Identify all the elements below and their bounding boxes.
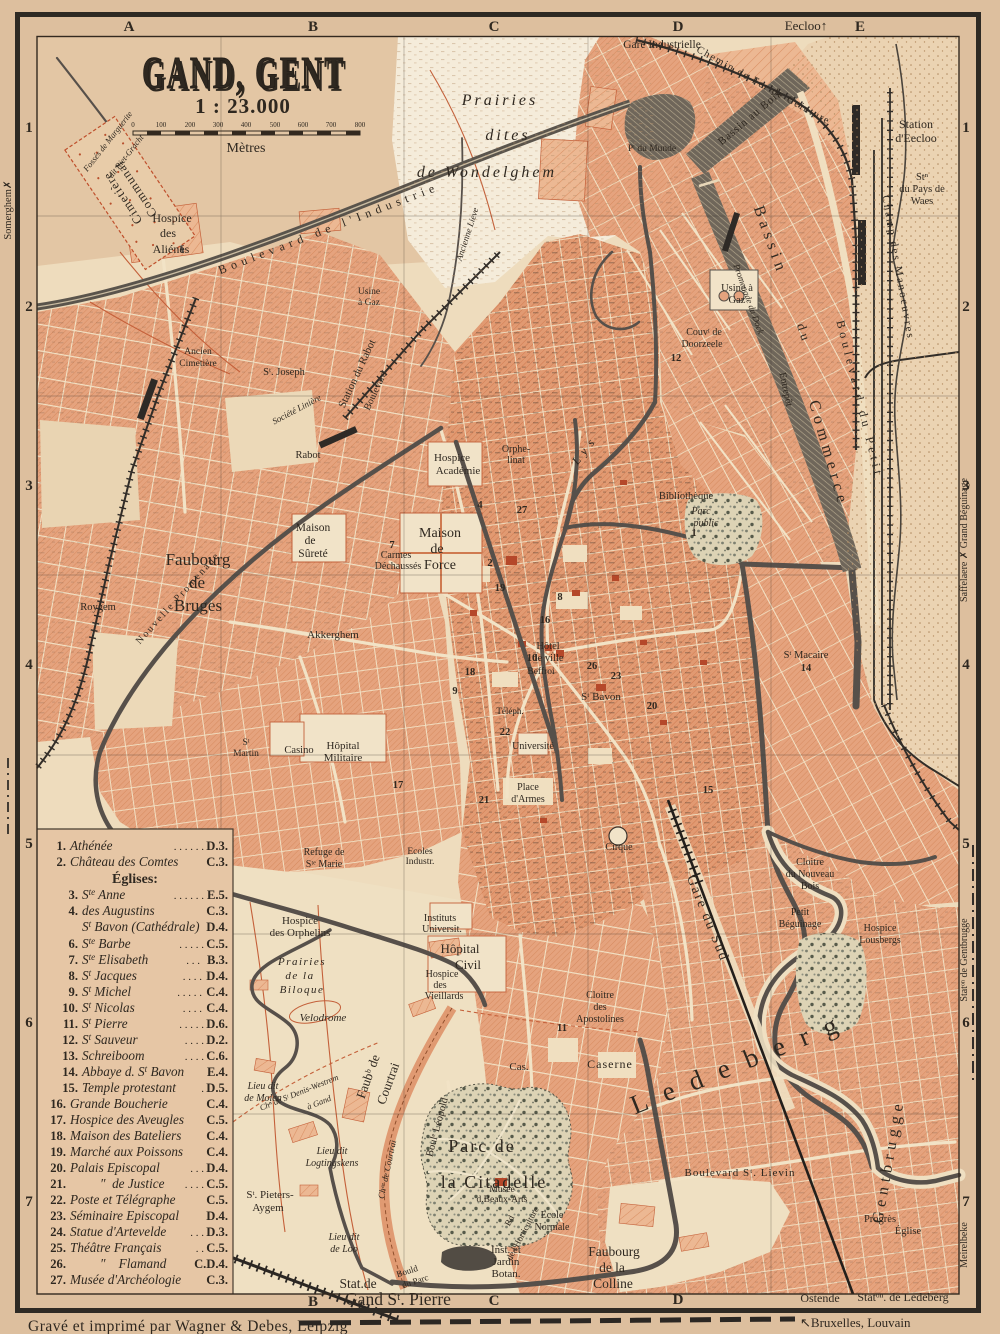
svg-text:Musée: Musée [489, 1185, 514, 1195]
svg-text:21.: 21. [50, 1177, 66, 1191]
svg-text:11: 11 [557, 1023, 567, 1034]
svg-text:Bibliothèque: Bibliothèque [659, 491, 714, 502]
svg-text:6: 6 [962, 1015, 970, 1031]
svg-text:C.5.: C.5. [206, 937, 228, 951]
svg-text:Colline: Colline [593, 1276, 633, 1291]
svg-text:d'Armes: d'Armes [511, 794, 545, 805]
svg-text:. . . . .: . . . . . [179, 1019, 204, 1031]
svg-text:Boulevard Sᵗ. Lievin: Boulevard Sᵗ. Lievin [684, 1167, 795, 1179]
svg-text:A: A [124, 19, 135, 35]
svg-text:à Gaz: à Gaz [358, 298, 380, 308]
svg-text:1.: 1. [57, 839, 66, 853]
svg-text:14.: 14. [62, 1065, 78, 1079]
svg-text:Maison des Bateliers: Maison des Bateliers [69, 1128, 181, 1143]
svg-text:de: de [305, 535, 316, 547]
svg-text:13.: 13. [62, 1049, 78, 1063]
svg-text:Biloque: Biloque [280, 984, 325, 996]
svg-text:16: 16 [540, 615, 551, 626]
svg-text:. . . .: . . . . [185, 1035, 205, 1047]
svg-text:22.: 22. [50, 1193, 66, 1207]
svg-text:D.3.: D.3. [206, 839, 228, 853]
svg-text:. . . .: . . . . [183, 971, 203, 983]
svg-text:27: 27 [517, 505, 528, 516]
svg-text:Saffelaere ✗ Grand Béguinage: Saffelaere ✗ Grand Béguinage [959, 477, 970, 602]
svg-text:. . . . . .: . . . . . . [174, 890, 205, 902]
svg-text:Beffroi: Beffroi [527, 666, 555, 677]
svg-text:17.: 17. [50, 1113, 66, 1127]
svg-text:St Sauveur: St Sauveur [82, 1032, 138, 1047]
svg-text:Lousbergs: Lousbergs [859, 935, 901, 946]
svg-text:Hospice: Hospice [282, 915, 318, 927]
svg-text:. . . .: . . . . [183, 1003, 203, 1015]
svg-text:Églises:: Églises: [112, 870, 158, 887]
svg-text:Parc de: Parc de [448, 1136, 515, 1156]
svg-text:Prairies: Prairies [277, 956, 326, 968]
svg-text:16.: 16. [50, 1097, 66, 1111]
svg-text:Station: Station [899, 117, 933, 131]
svg-text:. . . . .: . . . . . [179, 939, 204, 951]
svg-text:7: 7 [389, 540, 394, 551]
svg-text:4: 4 [962, 657, 970, 673]
svg-text:Hospice: Hospice [152, 211, 191, 225]
svg-text:Gare Industrielle: Gare Industrielle [623, 39, 701, 51]
svg-text:Place: Place [517, 782, 539, 793]
svg-text:Académie: Académie [436, 465, 481, 477]
svg-text:Carmes: Carmes [381, 550, 412, 561]
svg-text:C.4.: C.4. [206, 1001, 228, 1015]
svg-text:Sᵗᵉ Marie: Sᵗᵉ Marie [306, 859, 343, 870]
svg-text:Civil: Civil [455, 957, 481, 972]
svg-text:″ Flamand: ″ Flamand [100, 1256, 167, 1271]
svg-text:. . . .: . . . . [185, 1179, 205, 1191]
svg-text:Doorzeele: Doorzeele [681, 339, 723, 350]
svg-text:2: 2 [25, 299, 33, 315]
svg-text:2: 2 [487, 558, 492, 569]
svg-text:de: de [430, 542, 443, 557]
svg-text:E.5.: E.5. [207, 888, 228, 902]
svg-text:St Bavon (Cathédrale): St Bavon (Cathédrale) [82, 919, 200, 934]
svg-text:8: 8 [557, 592, 562, 603]
svg-text:Hospice: Hospice [864, 923, 897, 934]
svg-text:7: 7 [962, 1194, 970, 1210]
svg-text:Hospice: Hospice [426, 969, 459, 980]
svg-text:C.6.: C.6. [206, 1049, 228, 1063]
svg-text:2.: 2. [57, 855, 66, 869]
svg-text:. . . . .: . . . . . [177, 987, 202, 999]
svg-text:d'Eecloo: d'Eecloo [895, 131, 936, 145]
svg-text:Statᵒⁿ. de Ledeberg: Statᵒⁿ. de Ledeberg [857, 1290, 948, 1304]
svg-text:C.5.: C.5. [206, 1193, 228, 1207]
svg-text:5: 5 [25, 836, 33, 852]
svg-text:Sᵗ. Pieters-: Sᵗ. Pieters- [246, 1189, 294, 1201]
svg-text:Aygem: Aygem [252, 1202, 284, 1214]
svg-text:Maison: Maison [419, 526, 461, 541]
svg-text:6.: 6. [69, 937, 78, 951]
svg-text:C: C [489, 1293, 500, 1309]
svg-text:C.3.: C.3. [206, 1273, 228, 1287]
svg-text:E.4.: E.4. [207, 1065, 228, 1079]
svg-text:18: 18 [465, 667, 476, 678]
svg-text:Caserne: Caserne [587, 1057, 633, 1071]
svg-text:Sᵗ Macaire: Sᵗ Macaire [784, 650, 829, 661]
svg-text:Petit: Petit [791, 907, 810, 918]
svg-text:Prairies: Prairies [461, 92, 538, 109]
svg-text:C.4.: C.4. [206, 985, 228, 999]
svg-text:C.4.: C.4. [206, 1129, 228, 1143]
svg-text:des: des [160, 226, 176, 240]
svg-text:Ecoles: Ecoles [407, 847, 433, 857]
svg-text:C: C [489, 19, 500, 35]
svg-text:8.: 8. [69, 969, 78, 983]
svg-text:Hôtel: Hôtel [536, 641, 559, 652]
svg-text:26.: 26. [50, 1257, 66, 1271]
svg-text:800: 800 [355, 121, 366, 129]
svg-text:D.4.: D.4. [206, 1209, 228, 1223]
svg-text:Université: Université [512, 741, 554, 752]
svg-text:600: 600 [298, 121, 309, 129]
svg-text:. .: . . [196, 1243, 205, 1255]
svg-text:des: des [433, 980, 446, 991]
svg-text:3: 3 [25, 478, 33, 494]
svg-text:du Nouveau: du Nouveau [786, 869, 835, 880]
svg-text:Cas.: Cas. [509, 1061, 529, 1073]
svg-text:200: 200 [185, 121, 196, 129]
svg-text:C.5.: C.5. [206, 1113, 228, 1127]
svg-text:Cloitre: Cloitre [796, 857, 824, 868]
svg-text:2: 2 [962, 299, 970, 315]
svg-text:Abbaye d. St Bavon: Abbaye d. St Bavon [81, 1064, 185, 1079]
svg-text:Gaz: Gaz [729, 295, 746, 306]
svg-text:Ancien: Ancien [184, 347, 212, 357]
svg-text:12: 12 [671, 353, 682, 364]
svg-text:Poste et Télégraphe: Poste et Télégraphe [69, 1192, 176, 1207]
svg-text:Faubourg: Faubourg [166, 550, 231, 569]
svg-text:Statᵒⁿ de Gentbrugge: Statᵒⁿ de Gentbrugge [959, 918, 970, 1002]
svg-text:15: 15 [703, 785, 714, 796]
svg-text:de Loo: de Loo [330, 1244, 358, 1255]
svg-text:Cloitre: Cloitre [586, 990, 614, 1001]
svg-text:E: E [855, 19, 865, 35]
svg-text:B.3.: B.3. [207, 953, 228, 967]
svg-text:de la: de la [599, 1260, 625, 1275]
svg-text:D.5.: D.5. [206, 1081, 228, 1095]
svg-text:Militaire: Militaire [324, 752, 363, 764]
svg-text:0: 0 [131, 121, 135, 129]
svg-text:Athénée: Athénée [69, 838, 113, 853]
svg-text:Jardin: Jardin [493, 1256, 520, 1268]
svg-text:Sᵗ Bavon: Sᵗ Bavon [581, 691, 621, 703]
svg-text:27.: 27. [50, 1273, 66, 1287]
svg-text:Couvᵗ de: Couvᵗ de [686, 327, 722, 338]
svg-text:Aliénés: Aliénés [153, 242, 190, 256]
svg-text:Mètres: Mètres [227, 141, 266, 156]
svg-text:Inst. et: Inst. et [491, 1244, 521, 1256]
svg-text:C.D.4.: C.D.4. [194, 1257, 228, 1271]
svg-text:linat: linat [507, 455, 525, 466]
svg-text:500: 500 [270, 121, 281, 129]
svg-text:Roygem: Roygem [80, 602, 116, 613]
svg-text:Somerghem✗: Somerghem✗ [2, 180, 14, 239]
svg-text:B: B [308, 19, 318, 35]
svg-text:Téléph.: Téléph. [496, 706, 523, 716]
svg-text:22: 22 [500, 727, 511, 738]
svg-text:D.2.: D.2. [206, 1033, 228, 1047]
svg-text:Séminaire Episcopal: Séminaire Episcopal [70, 1208, 179, 1223]
svg-text:Gravé et imprimé par Wagner &: Gravé et imprimé par Wagner & Debes, Lei… [28, 1318, 348, 1334]
svg-text:Gand Sᵗ. Pierre: Gand Sᵗ. Pierre [345, 1289, 451, 1309]
svg-text:10.: 10. [62, 1001, 78, 1015]
svg-text:Ste Anne: Ste Anne [82, 887, 125, 902]
svg-text:18.: 18. [50, 1129, 66, 1143]
svg-text:de Wondelghem: de Wondelghem [417, 164, 557, 181]
svg-text:St Jacques: St Jacques [82, 968, 137, 983]
svg-text:D: D [673, 19, 684, 35]
svg-text:. . .: . . . [186, 955, 200, 967]
svg-text:Normale: Normale [535, 1222, 571, 1233]
svg-text:C.5.: C.5. [206, 1241, 228, 1255]
svg-text:Force: Force [424, 558, 456, 573]
svg-text:Statue d'Artevelde: Statue d'Artevelde [70, 1224, 166, 1239]
svg-text:25.: 25. [50, 1241, 66, 1255]
svg-text:Akkerghem: Akkerghem [307, 629, 359, 641]
svg-text:Ostende: Ostende [800, 1291, 839, 1305]
svg-text:3.: 3. [69, 888, 78, 902]
svg-text:Lieu dit: Lieu dit [316, 1146, 348, 1157]
svg-text:D.6.: D.6. [206, 1017, 228, 1031]
svg-text:1 : 23.000: 1 : 23.000 [195, 94, 291, 118]
svg-text:C.5.: C.5. [206, 1177, 228, 1191]
svg-text:Rabot: Rabot [295, 450, 320, 461]
svg-text:Progrès: Progrès [864, 1214, 896, 1225]
svg-text:. . . . . .: . . . . . . [174, 841, 205, 853]
svg-text:400: 400 [241, 121, 252, 129]
svg-text:10: 10 [527, 653, 538, 664]
svg-text:Temple protestant: Temple protestant [82, 1080, 176, 1095]
svg-text:Hôpital: Hôpital [327, 740, 360, 752]
svg-text:17: 17 [393, 780, 404, 791]
svg-text:.: . [201, 1083, 204, 1095]
svg-text:9.: 9. [69, 985, 78, 999]
svg-text:Sûreté: Sûreté [298, 548, 327, 560]
svg-text:Martin: Martin [233, 749, 259, 759]
svg-text:↖Bruxelles, Louvain: ↖Bruxelles, Louvain [800, 1315, 911, 1330]
svg-text:Hospice: Hospice [434, 452, 470, 464]
svg-text:5: 5 [962, 836, 970, 852]
svg-text:C.3.: C.3. [206, 904, 228, 918]
svg-text:. . .: . . . [190, 1227, 204, 1239]
svg-text:Maison: Maison [296, 522, 331, 534]
svg-text:Sᵗ: Sᵗ [242, 738, 249, 748]
svg-text:Pᵗ du Munde: Pᵗ du Munde [628, 144, 676, 154]
svg-text:Eecloo↑: Eecloo↑ [785, 18, 828, 33]
svg-text:B: B [308, 1294, 318, 1310]
svg-text:Stⁿ: Stⁿ [916, 172, 929, 183]
svg-text:21: 21 [479, 795, 490, 806]
svg-text:7: 7 [25, 1194, 33, 1210]
svg-text:D.4.: D.4. [206, 920, 228, 934]
svg-text:Hospice des Aveugles: Hospice des Aveugles [69, 1112, 184, 1127]
svg-text:4.: 4. [69, 904, 78, 918]
svg-text:d.Beaux-Arts: d.Beaux-Arts [477, 1195, 528, 1205]
svg-text:Usine à: Usine à [721, 283, 753, 294]
svg-text:″ de Justice: ″ de Justice [100, 1176, 165, 1191]
svg-text:4: 4 [25, 657, 33, 673]
svg-text:des Orphelins: des Orphelins [270, 927, 331, 939]
svg-text:23: 23 [611, 671, 622, 682]
svg-text:C.4.: C.4. [206, 1097, 228, 1111]
svg-text:Sᵗ. Joseph: Sᵗ. Joseph [263, 367, 305, 378]
svg-text:24.: 24. [50, 1225, 66, 1239]
svg-text:du Pays de: du Pays de [899, 184, 945, 195]
svg-text:D.4.: D.4. [206, 1161, 228, 1175]
svg-text:Théâtre Français: Théâtre Français [70, 1240, 161, 1255]
svg-text:Schreiboom: Schreiboom [82, 1048, 145, 1063]
svg-text:11.: 11. [63, 1017, 78, 1031]
svg-text:Vieillards: Vieillards [425, 991, 464, 1002]
svg-text:Marché aux Poissons: Marché aux Poissons [69, 1144, 183, 1159]
svg-text:Universit.: Universit. [422, 924, 462, 935]
svg-text:15.: 15. [62, 1081, 78, 1095]
svg-text:Lieu dit: Lieu dit [328, 1232, 360, 1243]
svg-text:D.4.: D.4. [206, 969, 228, 983]
svg-text:de la: de la [285, 970, 314, 982]
svg-text:Meirelbeke: Meirelbeke [959, 1222, 970, 1268]
svg-text:. . . .: . . . . [185, 1051, 205, 1063]
svg-text:23.: 23. [50, 1209, 66, 1223]
svg-text:Cirque: Cirque [605, 842, 633, 853]
svg-text:Béguinage: Béguinage [779, 919, 822, 930]
svg-text:100: 100 [156, 121, 167, 129]
svg-text:Grande Boucherie: Grande Boucherie [70, 1096, 168, 1111]
svg-text:9: 9 [452, 686, 457, 697]
svg-text:Waes: Waes [911, 196, 933, 207]
svg-text:Refuge de: Refuge de [304, 847, 345, 858]
svg-text:Instituts: Instituts [424, 913, 456, 924]
svg-text:Lieu dit: Lieu dit [247, 1081, 279, 1092]
svg-text:Industr.: Industr. [406, 857, 435, 867]
svg-text:Château des Comtes: Château des Comtes [70, 854, 178, 869]
svg-text:Musée d'Archéologie: Musée d'Archéologie [69, 1272, 181, 1287]
svg-text:Logtingskens: Logtingskens [305, 1158, 359, 1169]
svg-text:Apostolines: Apostolines [576, 1014, 624, 1025]
svg-text:20: 20 [647, 701, 658, 712]
svg-text:Déchaussés: Déchaussés [375, 561, 422, 572]
svg-text:12.: 12. [62, 1033, 78, 1047]
svg-text:dites: dites [485, 127, 530, 144]
svg-text:Église: Église [895, 1225, 922, 1237]
svg-text:D.3.: D.3. [206, 1225, 228, 1239]
svg-text:Bois: Bois [801, 881, 819, 892]
svg-text:C.4.: C.4. [206, 1145, 228, 1159]
svg-text:C.3.: C.3. [206, 855, 228, 869]
svg-text:Casino: Casino [284, 745, 313, 756]
svg-text:Palais Episcopal: Palais Episcopal [69, 1160, 160, 1175]
svg-text:Botan.: Botan. [491, 1268, 520, 1280]
svg-text:1: 1 [25, 120, 33, 136]
svg-text:7.: 7. [69, 953, 78, 967]
svg-text:des: des [593, 1002, 606, 1013]
svg-text:26: 26 [587, 661, 598, 672]
svg-text:Velodrome: Velodrome [300, 1012, 347, 1024]
svg-text:20.: 20. [50, 1161, 66, 1175]
svg-text:Ecole: Ecole [541, 1210, 564, 1221]
svg-text:19: 19 [495, 583, 506, 594]
svg-text:des Augustins: des Augustins [82, 903, 155, 918]
svg-text:D: D [673, 1292, 684, 1308]
svg-text:6: 6 [25, 1015, 33, 1031]
svg-text:Usine: Usine [358, 287, 380, 297]
svg-text:Parc: Parc [690, 506, 711, 517]
svg-text:Orphe-: Orphe- [502, 444, 530, 455]
svg-text:14: 14 [801, 663, 812, 674]
svg-text:Cimetière: Cimetière [179, 359, 216, 369]
svg-text:1: 1 [962, 120, 970, 136]
svg-text:Faubourg: Faubourg [588, 1244, 640, 1259]
svg-text:GAND, GENT: GAND, GENT [142, 48, 346, 98]
svg-text:. . .: . . . [190, 1163, 204, 1175]
svg-text:300: 300 [213, 121, 224, 129]
svg-text:4: 4 [477, 500, 483, 511]
svg-text:1: 1 [691, 528, 696, 539]
svg-text:19.: 19. [50, 1145, 66, 1159]
svg-text:Hôpital: Hôpital [441, 941, 480, 956]
svg-text:700: 700 [326, 121, 337, 129]
